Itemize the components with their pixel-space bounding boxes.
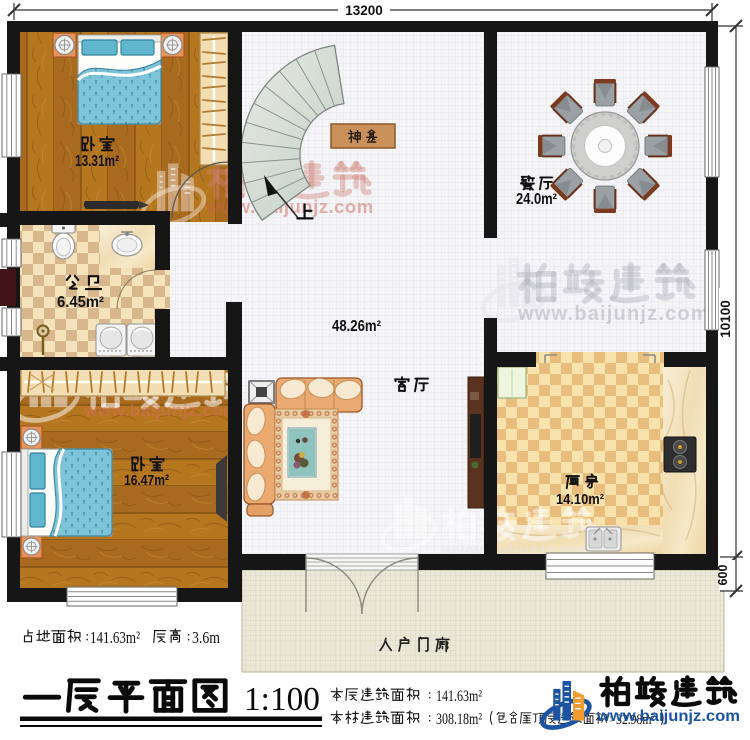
svg-text:48.26m²: 48.26m² xyxy=(332,318,381,335)
svg-text:www.baijunjz.com: www.baijunjz.com xyxy=(83,401,239,420)
svg-text:141.63m²: 141.63m² xyxy=(436,688,482,705)
svg-text:14.10m²: 14.10m² xyxy=(556,492,604,508)
svg-text:308.18m²: 308.18m² xyxy=(436,711,482,728)
svg-text:16.47m²: 16.47m² xyxy=(124,472,169,489)
svg-text:6.45m²: 6.45m² xyxy=(57,294,104,311)
svg-text:www.baijunjz.com: www.baijunjz.com xyxy=(517,303,710,325)
svg-text:13.31m²: 13.31m² xyxy=(75,153,119,170)
svg-text:www.baijunjz.com: www.baijunjz.com xyxy=(596,708,740,725)
svg-text:24.0m²: 24.0m² xyxy=(516,191,557,208)
svg-text:600: 600 xyxy=(716,565,730,586)
svg-text:13200: 13200 xyxy=(345,3,383,18)
svg-text:141.63m²: 141.63m² xyxy=(90,628,140,647)
svg-text:1:100: 1:100 xyxy=(244,681,320,718)
svg-text:3.6m: 3.6m xyxy=(192,628,220,647)
svg-text:10100: 10100 xyxy=(718,300,733,338)
